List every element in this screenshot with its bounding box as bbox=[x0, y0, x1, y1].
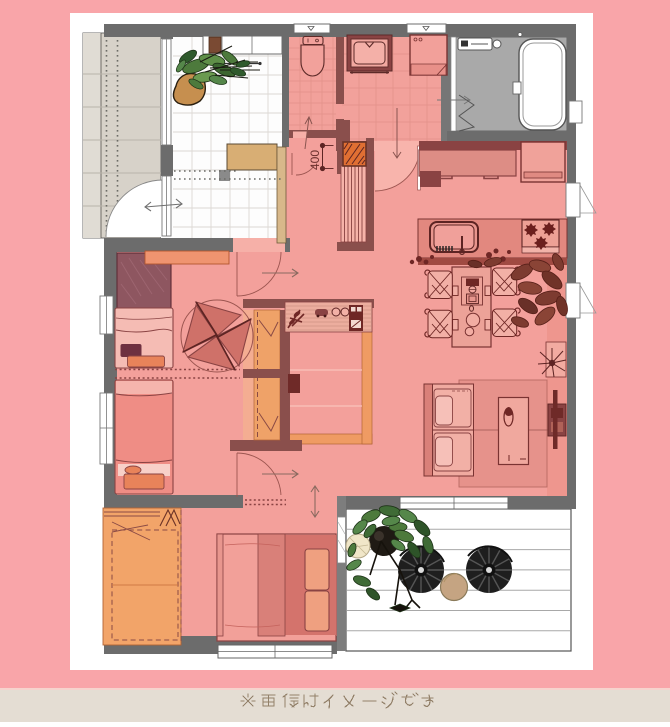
svg-text:400: 400 bbox=[308, 150, 322, 170]
